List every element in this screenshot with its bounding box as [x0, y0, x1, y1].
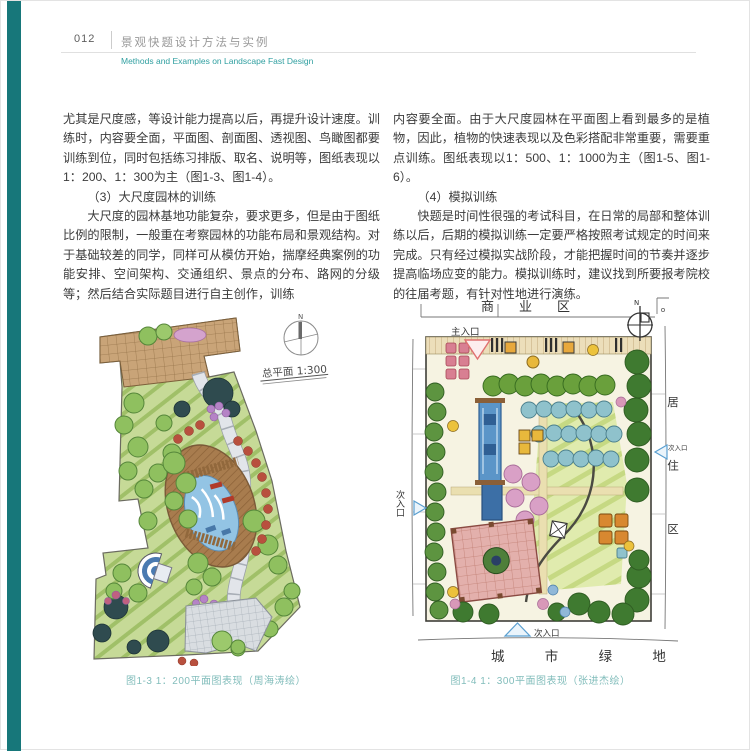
- figure-1-4-caption: 图1-4 1：300平面图表现（张进杰绘）: [393, 672, 688, 687]
- page-number: 012: [74, 33, 95, 45]
- book-title-en: Methods and Examples on Landscape Fast D…: [121, 56, 313, 66]
- figure-1-3-caption: 图1-3 1：200平面图表现（周海涛绘）: [86, 672, 346, 687]
- flower-bed: [174, 328, 206, 342]
- header-rule: [61, 52, 696, 53]
- label-side-entrance-left: 次入口: [394, 489, 405, 517]
- paragraph: 大尺度的园林基地功能复杂，要求更多，但是由于图纸比例的限制，一般重在考察园林的功…: [63, 207, 380, 304]
- pink-plaza: [451, 517, 542, 603]
- bottom-plaza-paving: [185, 598, 272, 654]
- label-side-entrance-bottom: 次入口: [534, 628, 560, 639]
- figure-1-4-plan-drawing: N 商 业 区 主入口 居住区 次入口 次入口 次入口 城 市 绿 地: [393, 284, 688, 669]
- paragraph: 内容要全面。由于大尺度园林在平面图上看到最多的是植物，因此，植物的快速表现以及色…: [393, 110, 710, 188]
- label-urban-green-zone: 城 市 绿 地: [491, 648, 684, 665]
- side-entrance-arrow-left: [414, 501, 426, 515]
- svg-text:N: N: [298, 313, 303, 321]
- plan-scale-label: 总平面 1:300: [260, 362, 329, 384]
- side-entrance-arrow-bottom: [505, 623, 530, 636]
- figure-1-3-plan-drawing: N 总平面 1:300: [86, 311, 346, 666]
- kiosk: [505, 342, 516, 353]
- gazebo: [550, 521, 567, 538]
- left-accent-bar: [7, 1, 21, 751]
- label-main-entrance: 主入口: [451, 326, 480, 338]
- svg-text:N: N: [634, 299, 639, 307]
- paragraph: 尤其是尺度感，等设计能力提高以后，再提升设计速度。训练时，内容要全面，平面图、剖…: [63, 110, 380, 188]
- label-residential-zone: 居住区: [666, 396, 680, 587]
- side-entrance-arrow-right: [655, 445, 667, 459]
- kiosk: [563, 342, 574, 353]
- text-column-right: 内容要全面。由于大尺度园林在平面图上看到最多的是植物，因此，植物的快速表现以及色…: [393, 110, 710, 304]
- header-divider: [111, 31, 112, 49]
- section-heading: （3）大尺度园林的训练: [63, 188, 380, 207]
- text-column-left: 尤其是尺度感，等设计能力提高以后，再提升设计速度。训练时，内容要全面，平面图、剖…: [63, 110, 380, 304]
- label-commercial-zone: 商 业 区: [481, 300, 576, 315]
- north-arrow: N: [284, 313, 318, 355]
- book-page: 012 景观快题设计方法与实例 Methods and Examples on …: [0, 0, 750, 750]
- section-heading: （4）模拟训练: [393, 188, 710, 207]
- book-title-zh: 景观快题设计方法与实例: [121, 34, 270, 50]
- label-side-entrance-right: 次入口: [668, 443, 688, 452]
- north-arrow: N: [627, 299, 653, 341]
